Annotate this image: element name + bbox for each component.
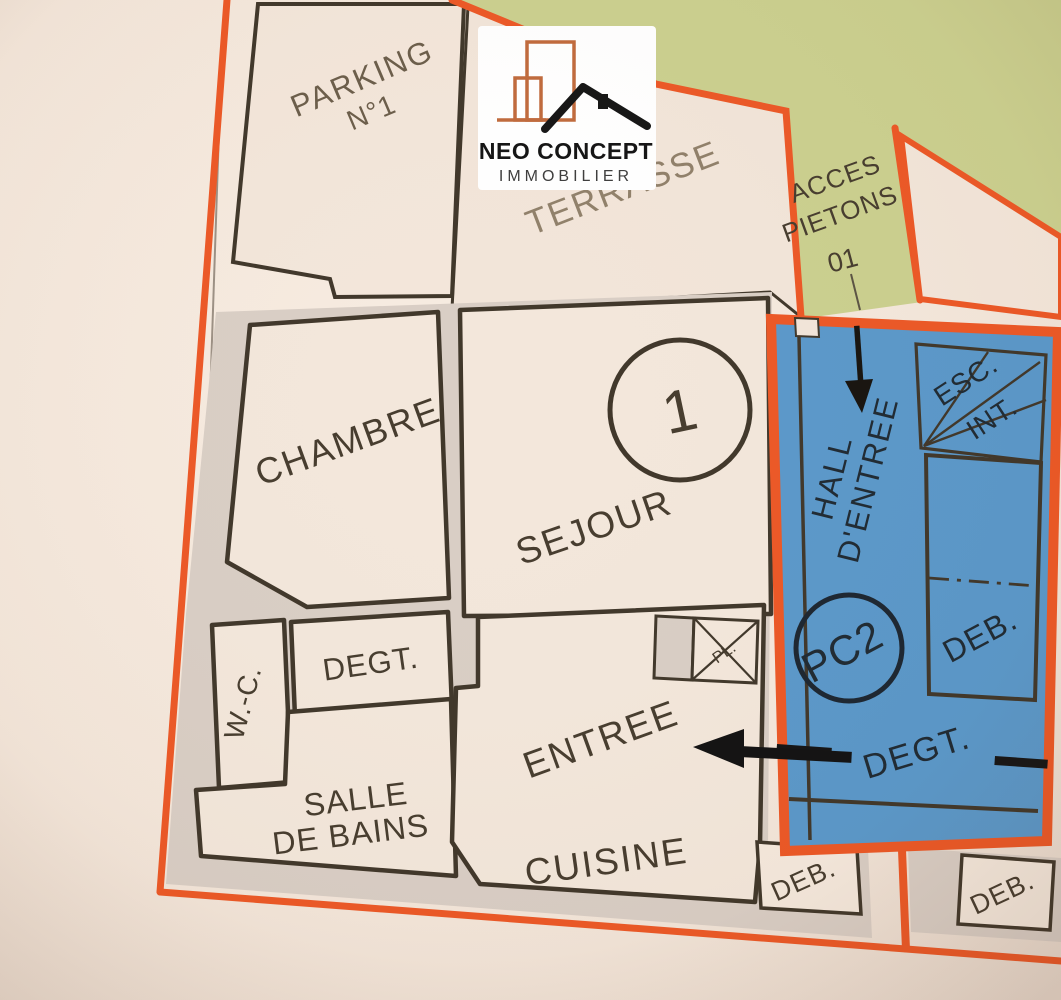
hall-entry-notch bbox=[795, 318, 819, 337]
logo-name: NEO CONCEPT bbox=[479, 138, 653, 164]
room-sejour bbox=[460, 298, 771, 616]
border-divider-south bbox=[902, 850, 906, 950]
floor-plan-photo: PARKING N°1 TERRASSE CHAMBRE SEJOUR 1 DE… bbox=[0, 0, 1061, 1000]
logo-tagline: IMMOBILIER bbox=[499, 168, 633, 185]
closet-shaft-box bbox=[654, 616, 694, 680]
agency-logo: NEO CONCEPT IMMOBILIER bbox=[478, 26, 656, 190]
floor-plan-svg: PARKING N°1 TERRASSE CHAMBRE SEJOUR 1 DE… bbox=[0, 0, 1061, 1000]
